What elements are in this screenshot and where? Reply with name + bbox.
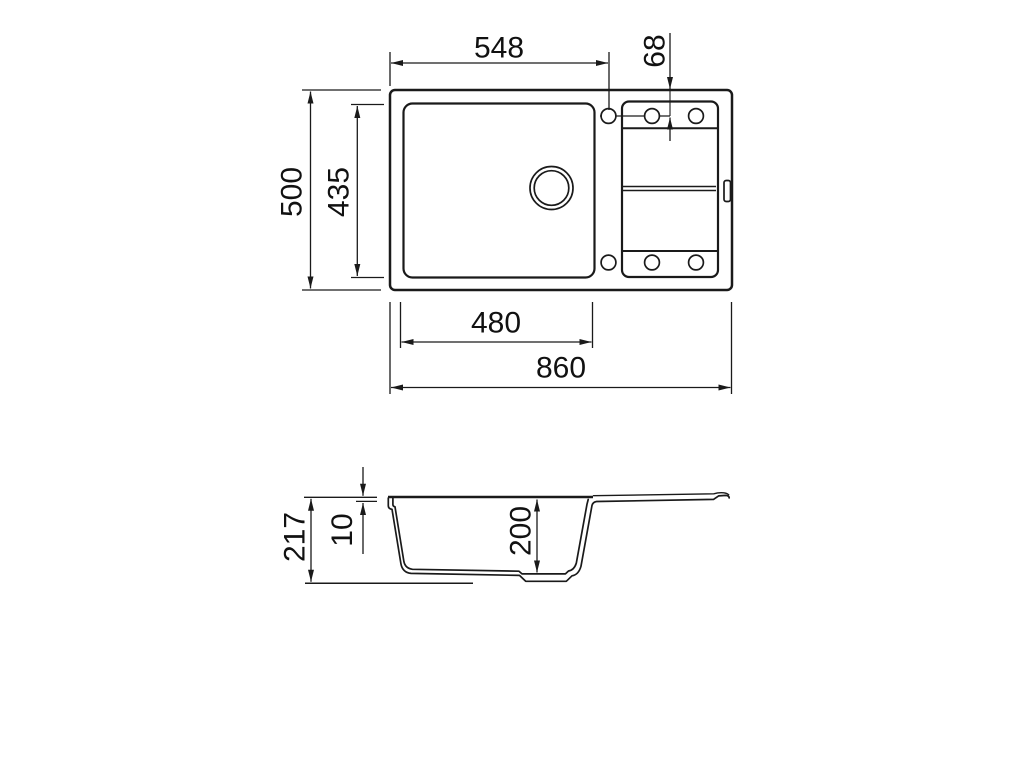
dimension-label-200: 200 xyxy=(505,506,538,556)
dimension-label-217: 217 xyxy=(279,512,312,562)
tap-hole-top-3 xyxy=(689,109,704,124)
dimension-435: 435 xyxy=(323,105,385,278)
dimension-480: 480 xyxy=(401,302,593,348)
section-outer-profile xyxy=(388,495,729,581)
dimension-label-500: 500 xyxy=(276,167,309,217)
dimension-label-68: 68 xyxy=(639,34,672,67)
section-inner-profile xyxy=(393,498,588,574)
dimension-label-480: 480 xyxy=(471,307,521,340)
dimension-10: 10 xyxy=(326,467,377,554)
tap-hole-bottom-2 xyxy=(645,255,660,270)
tap-hole-bottom-1 xyxy=(601,255,616,270)
overflow-slot xyxy=(724,181,731,202)
tap-hole-top-1 xyxy=(601,109,616,124)
side-view: 217 10 200 xyxy=(279,467,730,583)
dimension-label-10: 10 xyxy=(326,513,359,546)
dimension-860: 860 xyxy=(390,302,732,394)
tap-hole-bottom-3 xyxy=(689,255,704,270)
dimension-label-548: 548 xyxy=(474,32,524,65)
main-bowl xyxy=(404,104,595,278)
top-view: 548 68 500 435 xyxy=(276,32,733,395)
drawing-canvas: 548 68 500 435 xyxy=(0,0,1024,768)
dimension-label-860: 860 xyxy=(536,352,586,385)
drainboard-top-line xyxy=(594,493,729,496)
dimension-label-435: 435 xyxy=(323,167,356,217)
sink-technical-drawing: 548 68 500 435 xyxy=(0,0,1024,768)
dimension-200: 200 xyxy=(505,500,538,573)
tap-hole-top-2 xyxy=(645,109,660,124)
